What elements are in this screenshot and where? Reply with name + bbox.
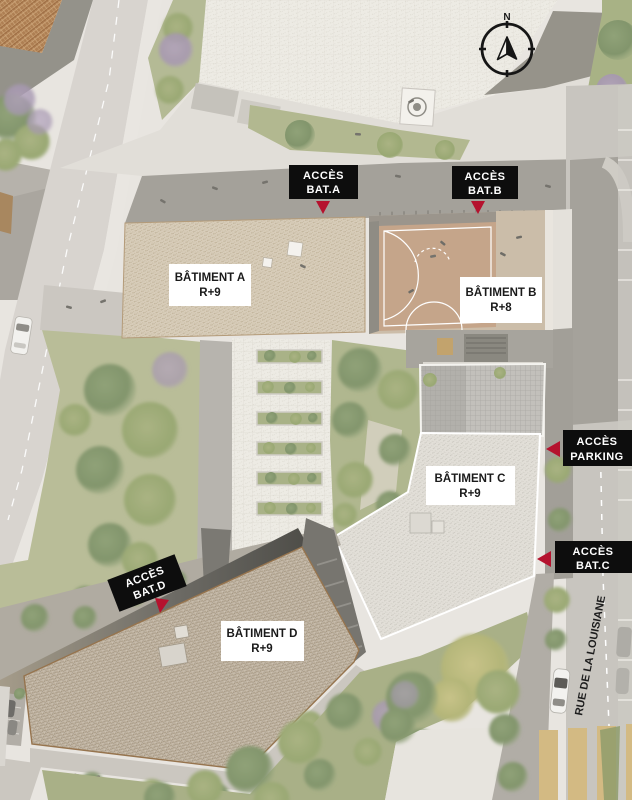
svg-text:R+8: R+8 [490, 302, 512, 314]
svg-text:BAT.B: BAT.B [468, 185, 502, 197]
svg-text:R+9: R+9 [199, 287, 220, 299]
svg-text:BAT.C: BAT.C [576, 560, 610, 572]
svg-text:R+9: R+9 [251, 643, 272, 655]
svg-text:PARKING: PARKING [570, 451, 623, 463]
svg-text:BÂTIMENT C: BÂTIMENT C [435, 472, 506, 485]
svg-text:BÂTIMENT D: BÂTIMENT D [227, 627, 298, 640]
svg-text:ACCÈS: ACCÈS [572, 545, 613, 558]
svg-text:R+9: R+9 [459, 488, 480, 500]
svg-text:BÂTIMENT B: BÂTIMENT B [466, 286, 537, 299]
svg-text:ACCÈS: ACCÈS [576, 435, 617, 448]
svg-text:ACCÈS: ACCÈS [464, 170, 505, 183]
svg-text:ACCÈS: ACCÈS [303, 169, 344, 182]
svg-text:BÂTIMENT A: BÂTIMENT A [175, 271, 245, 284]
svg-text:BAT.A: BAT.A [306, 184, 340, 196]
